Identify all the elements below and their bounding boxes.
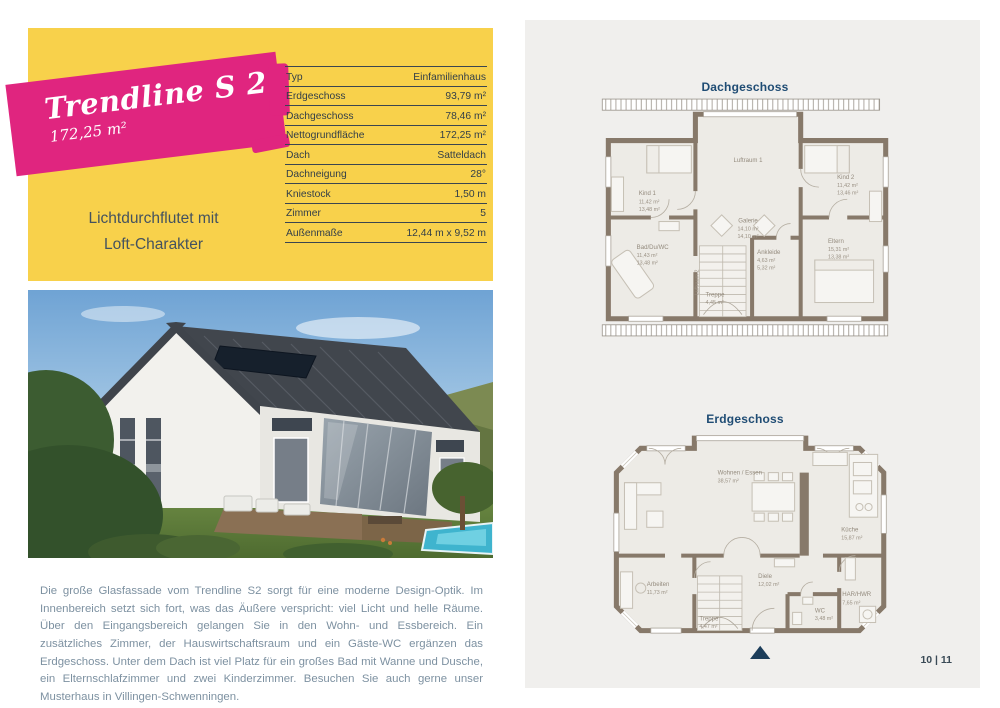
room-label: Küche: [841, 527, 859, 533]
tagline: Lichtdurchflutet mit Loft-Charakter: [46, 206, 261, 257]
room-area: 5,32 m²: [757, 266, 775, 272]
cloud: [296, 317, 420, 339]
spec-label: Nettogrundfläche: [286, 130, 364, 141]
room-label: Ankleide: [757, 250, 781, 256]
spec-value: Einfamilienhaus: [413, 72, 486, 83]
room-label: Bad/Du/WC: [637, 245, 670, 251]
spec-label: Dach: [286, 150, 310, 161]
room-area: 4,45 m²: [706, 300, 724, 306]
spec-row: Außenmaße12,44 m x 9,52 m: [285, 223, 487, 243]
spec-label: Typ: [286, 72, 303, 83]
house-photo: [28, 290, 493, 558]
room-label: WC: [815, 608, 826, 614]
eg-kitchen-wall: [800, 473, 809, 556]
spec-value: 28°: [470, 169, 486, 180]
erdgeschoss-floorplan: Wohnen / Essen 38,57 m² Küche 15,87 m² A…: [598, 424, 892, 662]
tagline-line2: Loft-Charakter: [104, 236, 203, 253]
room-label: Eltern: [828, 239, 844, 245]
room-area: 11,42 m²: [837, 183, 858, 189]
spec-label: Zimmer: [286, 208, 321, 219]
spec-value: Satteldach: [437, 150, 486, 161]
clerestory-window: [436, 440, 464, 452]
room-area: 13,46 m²: [837, 191, 858, 197]
spec-label: Kniestock: [286, 189, 331, 200]
spec-table: TypEinfamilienhaus Erdgeschoss93,79 m² D…: [285, 66, 487, 243]
eg-glass-front: [696, 436, 803, 441]
tree-trunk: [460, 496, 465, 530]
room-label: Luftraum 2: [694, 269, 700, 295]
room-label: Luftraum 1: [734, 158, 764, 164]
room-area: 38,57 m²: [718, 479, 739, 485]
floorplan-panel: Dachgeschoss: [525, 20, 980, 688]
room-area: 15,87 m²: [841, 535, 862, 541]
spec-row: Dachgeschoss78,46 m²: [285, 106, 487, 126]
roof-overhang-hatch-top: [602, 99, 879, 110]
spec-label: Dachneigung: [286, 169, 347, 180]
room-area: 13,48 m²: [637, 261, 658, 267]
title-ribbon: Trendline S 2 172,25 m²: [5, 52, 286, 176]
dachgeschoss-floorplan: Luftraum 1 Kind 1 11,42 m² 13,48 m² Kind…: [598, 94, 892, 342]
spec-row: DachSatteldach: [285, 145, 487, 165]
spec-row: Dachneigung28°: [285, 165, 487, 185]
room-area: 11,42 m²: [639, 199, 660, 205]
page-number: 10 | 11: [920, 654, 952, 666]
room-area: 14,10 m²: [737, 227, 758, 233]
spec-label: Dachgeschoss: [286, 111, 354, 122]
garden-bench: [368, 516, 402, 524]
spec-value: 93,79 m²: [445, 91, 486, 102]
room-label: Kind 2: [837, 175, 855, 181]
spec-row: Zimmer5: [285, 204, 487, 224]
roof-overhang-hatch-bottom: [602, 325, 887, 336]
cloud: [81, 306, 165, 322]
house-photo-illustration: [28, 290, 493, 558]
terrace-door: [274, 438, 308, 502]
room-area: 13,38 m²: [828, 254, 849, 260]
room-label: HAR/HWR: [842, 592, 872, 598]
spec-row: Erdgeschoss93,79 m²: [285, 87, 487, 107]
spec-value: 1,50 m: [455, 189, 486, 200]
room-area: 12,02 m²: [758, 582, 779, 588]
room-label: Galerie: [738, 219, 758, 225]
room-label: Arbeiten: [647, 582, 670, 588]
room-area: 14,10 m²: [737, 234, 758, 240]
description-text: Die große Glasfassade vom Trendline S2 s…: [40, 583, 483, 707]
room-area: 11,73 m²: [647, 590, 668, 596]
entrance-marker-triangle: [750, 646, 770, 659]
clerestory-window: [272, 418, 312, 431]
tagline-line1: Lichtdurchflutet mit: [88, 210, 218, 227]
room-area: 11,43 m²: [637, 253, 658, 259]
spec-label: Erdgeschoss: [286, 91, 346, 102]
spec-row: TypEinfamilienhaus: [285, 66, 487, 87]
dachgeschoss-title: Dachgeschoss: [598, 80, 892, 94]
room-area: 7,65 m²: [842, 600, 860, 606]
room-label: Treppe: [699, 616, 719, 622]
info-card: Trendline S 2 172,25 m² Lichtdurchflutet…: [28, 28, 493, 281]
flower: [388, 541, 392, 545]
brochure-page: Trendline S 2 172,25 m² Lichtdurchflutet…: [0, 0, 1000, 708]
flower: [381, 538, 385, 542]
room-label: Kind 1: [639, 191, 657, 197]
spec-row: Kniestock1,50 m: [285, 184, 487, 204]
room-area: 4,47 m²: [699, 624, 717, 630]
dg-stairs: [699, 246, 746, 317]
room-area: 3,48 m²: [815, 616, 833, 622]
room-label: Diele: [758, 574, 772, 580]
spec-row: Nettogrundfläche172,25 m²: [285, 126, 487, 146]
spec-value: 78,46 m²: [445, 111, 486, 122]
room-area: 13,48 m²: [639, 207, 660, 213]
spec-label: Außenmaße: [286, 228, 343, 239]
room-label: Treppe: [706, 292, 726, 298]
spec-value: 172,25 m²: [440, 130, 486, 141]
spec-value: 12,44 m x 9,52 m: [406, 228, 486, 239]
room-label: Wohnen / Essen: [718, 471, 762, 477]
room-area: 15,31 m²: [828, 247, 849, 253]
room-area: 4,63 m²: [757, 258, 775, 264]
spec-value: 5: [480, 208, 486, 219]
